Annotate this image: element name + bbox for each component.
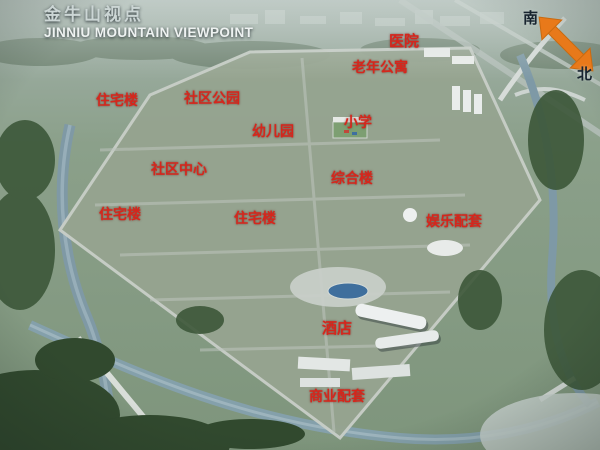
map-label-residential-2: 住宅楼 [99,204,141,224]
compass-south-label: 南 [523,7,538,28]
title-english: JINNIU MOUNTAIN VIEWPOINT [44,25,253,41]
map-label-commercial: 商业配套 [309,386,365,406]
map-label-primary-school: 小学 [344,112,372,132]
map-label-kindergarten: 幼儿园 [252,121,294,141]
map-label-hospital: 医院 [389,30,419,51]
map-label-community-park: 社区公园 [184,88,240,108]
page-title: 金牛山视点 JINNIU MOUNTAIN VIEWPOINT [44,5,253,40]
map-label-mixed-use-building: 综合楼 [331,168,373,188]
map-label-hotel: 酒店 [322,317,352,338]
map-label-residential-3: 住宅楼 [234,208,276,228]
map-label-residential-1: 住宅楼 [96,90,138,110]
map-label-community-center: 社区中心 [151,159,207,179]
aerial-masterplan-view: 金牛山视点 JINNIU MOUNTAIN VIEWPOINT 南 北 医院 老… [0,0,600,450]
map-label-senior-apartments: 老年公寓 [352,57,408,77]
map-label-entertainment: 娱乐配套 [426,211,482,231]
title-chinese: 金牛山视点 [44,5,253,25]
compass-north-label: 北 [577,63,592,84]
